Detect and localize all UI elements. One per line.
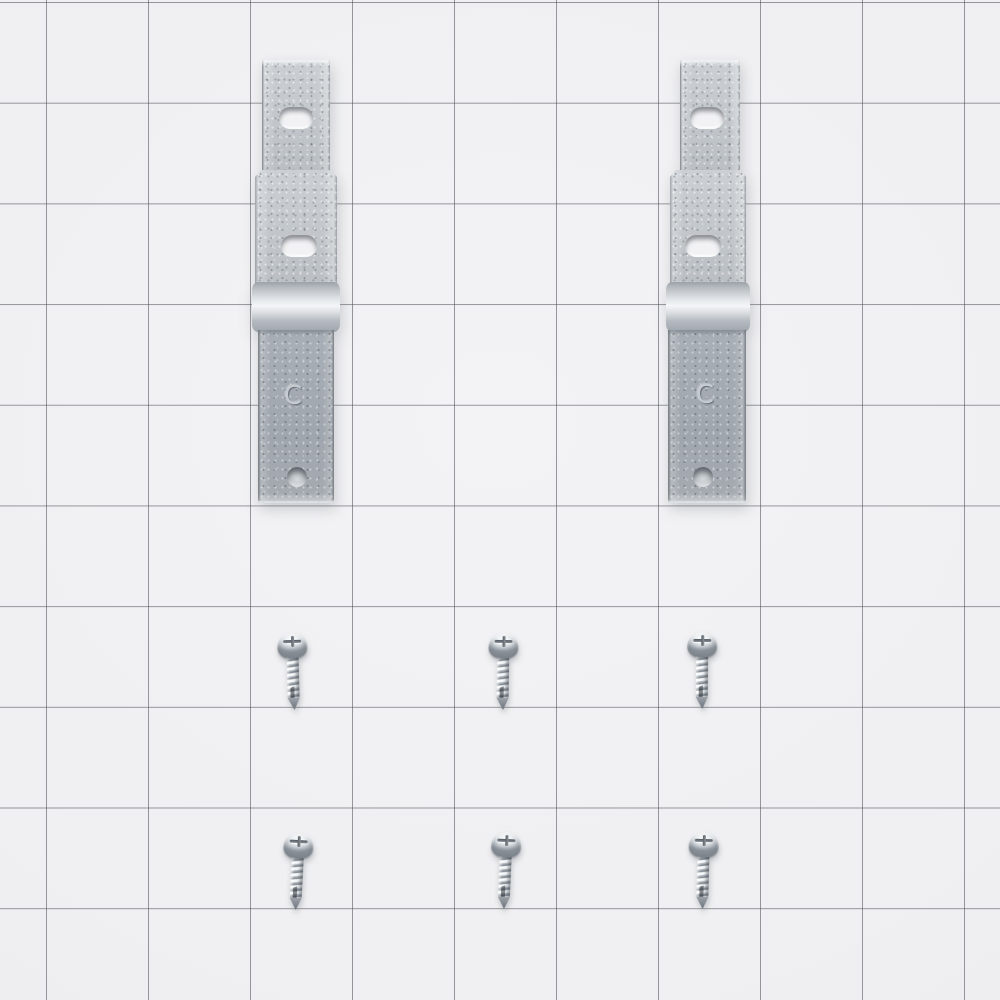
screw-tip	[696, 897, 708, 909]
phillips-cross-icon	[505, 835, 508, 846]
screw-3	[685, 632, 720, 712]
screw-shank	[497, 656, 510, 699]
mounting-hole	[693, 467, 713, 487]
screw-shank	[696, 655, 708, 698]
screw-shank	[498, 855, 512, 898]
bracket-bend-highlight	[666, 282, 750, 332]
upper-slot	[279, 107, 313, 129]
screw-head	[283, 832, 314, 859]
phillips-cross-icon	[502, 636, 505, 647]
marking-letter: C	[696, 380, 714, 410]
phillips-cross-icon	[701, 635, 704, 646]
bracket-mid-section	[670, 170, 746, 286]
phillips-cross-icon	[291, 636, 294, 647]
screw-tip	[496, 698, 508, 710]
phillips-cross-icon	[297, 836, 301, 847]
bracket-left: C	[250, 56, 342, 504]
middle-slot	[685, 235, 721, 257]
screw-head	[491, 831, 522, 857]
phillips-cross-icon	[702, 835, 705, 846]
screw-tip	[289, 898, 302, 911]
screw-shank	[290, 856, 304, 900]
middle-slot	[281, 235, 317, 257]
screw-shank	[696, 855, 709, 898]
bracket-bend-highlight	[252, 282, 340, 332]
screw-tip	[696, 697, 708, 709]
screw-shank	[287, 656, 300, 699]
bracket-right: C	[664, 56, 756, 504]
screw-head	[488, 633, 518, 659]
screw-head	[688, 832, 719, 858]
upper-slot	[690, 107, 724, 129]
screw-head	[277, 633, 308, 659]
marking-letter: C	[284, 381, 302, 411]
mounting-hole	[287, 467, 307, 487]
screw-5	[486, 831, 523, 912]
screw-head	[687, 632, 717, 657]
bracket-mid-section	[255, 170, 337, 286]
screw-tip	[288, 698, 300, 710]
screw-2	[485, 633, 520, 714]
screw-6	[685, 832, 721, 913]
screw-4	[278, 832, 316, 914]
product-photo: C C	[0, 0, 1000, 1000]
screw-1	[275, 633, 311, 714]
screw-tip	[497, 897, 510, 910]
